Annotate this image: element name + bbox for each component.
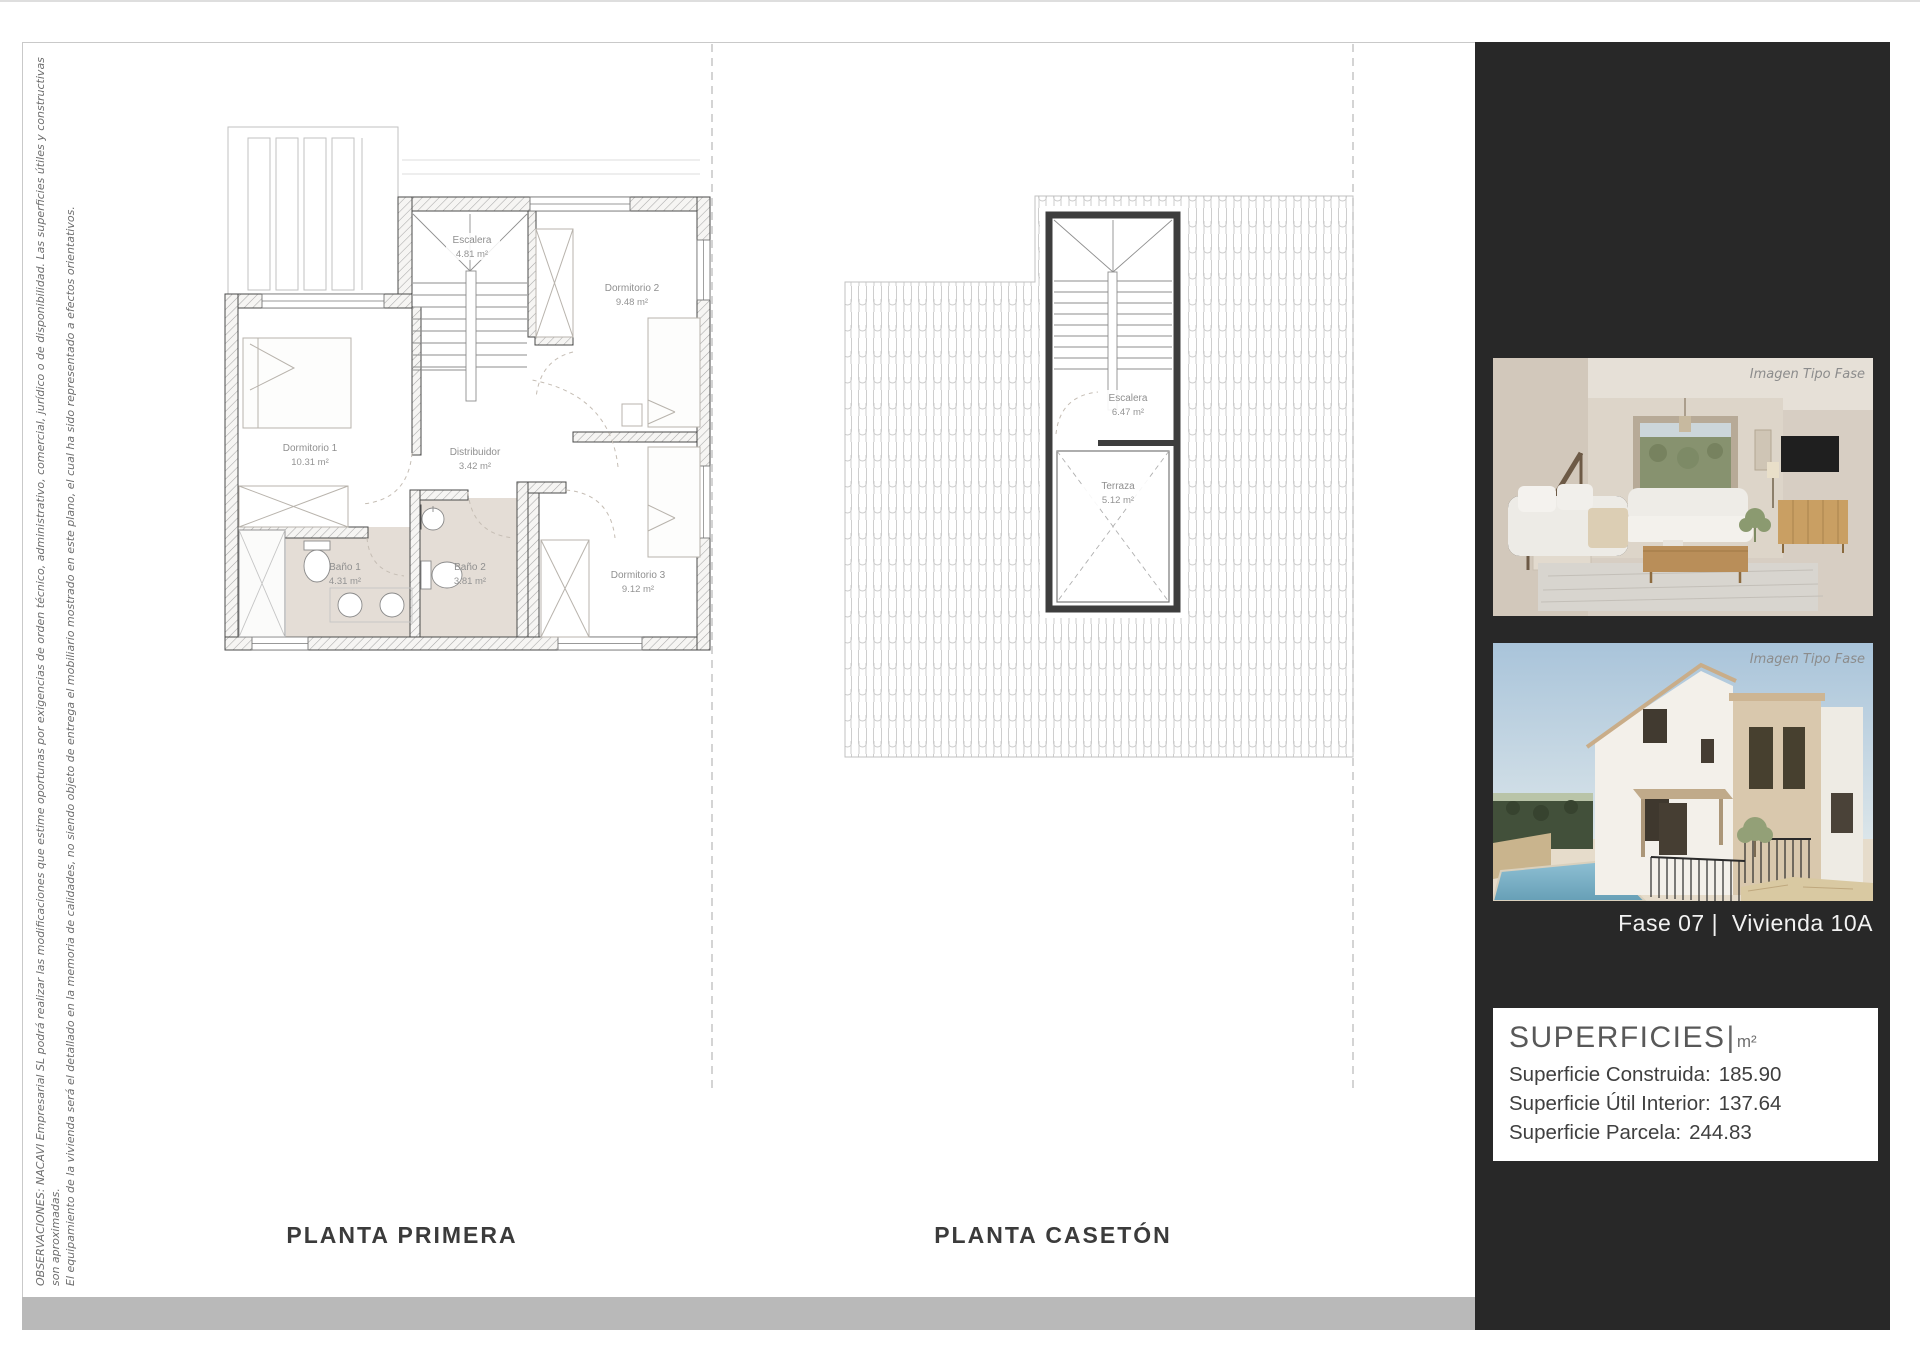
svg-text:9.12 m²: 9.12 m² — [622, 584, 654, 595]
svg-text:Baño 1: Baño 1 — [329, 562, 361, 573]
bottom-gray-bar — [22, 1297, 1475, 1330]
upper-window — [1643, 709, 1667, 743]
plan-title-caseton: PLANTA CASETÓN — [883, 1222, 1223, 1249]
svg-text:Escalera: Escalera — [453, 235, 492, 246]
info-sidebar: Imagen Tipo Fase — [1475, 42, 1890, 1330]
interior-render-scene: Imagen Tipo Fase — [1493, 358, 1873, 616]
floor-plan-caseton: Escalera 6.47 m² Terraza 5.12 m² — [845, 196, 1353, 757]
room-label-dormitorio-3: Dormitorio 3 9.12 m² — [611, 570, 666, 595]
room-label-dormitorio-1: Dormitorio 1 10.31 m² — [283, 443, 338, 468]
svg-text:5.12 m²: 5.12 m² — [1102, 495, 1134, 506]
floor-plans-drawing: Escalera 4.81 m² Dormitorio 2 9.48 m² Do… — [0, 0, 1475, 1357]
room-label-dormitorio-2: Dormitorio 2 9.48 m² — [605, 283, 660, 308]
superficies-heading: SUPERFICIES|m² — [1509, 1020, 1862, 1060]
svg-text:Baño 2: Baño 2 — [454, 562, 486, 573]
superficie-parcela-row: Superficie Parcela:244.83 — [1509, 1118, 1862, 1147]
floor-lamp — [1767, 462, 1779, 478]
svg-text:4.31 m²: 4.31 m² — [329, 576, 361, 587]
image-caption: Imagen Tipo Fase — [1750, 652, 1865, 667]
superficies-box: SUPERFICIES|m² Superficie Construida:185… — [1493, 1008, 1878, 1161]
pergola-canopy — [1633, 789, 1733, 799]
svg-text:Distribuidor: Distribuidor — [450, 447, 501, 458]
unit-title: Fase 07 | Vivienda 10A — [1618, 910, 1873, 937]
interior-render-image: Imagen Tipo Fase — [1493, 358, 1873, 616]
svg-text:3.42 m²: 3.42 m² — [459, 461, 491, 472]
pergola-terrace — [228, 127, 398, 295]
exterior-render-scene: Imagen Tipo Fase — [1493, 643, 1873, 901]
room-label-distribuidor: Distribuidor 3.42 m² — [450, 447, 501, 472]
svg-text:4.81 m²: 4.81 m² — [456, 249, 488, 260]
svg-text:6.47 m²: 6.47 m² — [1112, 407, 1144, 418]
exterior-render-image: Imagen Tipo Fase — [1493, 643, 1873, 901]
coffee-table — [1643, 546, 1748, 572]
superficie-util-row: Superficie Útil Interior:137.64 — [1509, 1089, 1862, 1118]
pendant-lamp — [1679, 416, 1691, 432]
image-caption: Imagen Tipo Fase — [1750, 367, 1865, 382]
svg-text:Escalera: Escalera — [1109, 393, 1148, 404]
plan-title-primera: PLANTA PRIMERA — [232, 1222, 572, 1249]
entry-door — [1659, 803, 1687, 855]
floor-plan-primera: Escalera 4.81 m² Dormitorio 2 9.48 m² Do… — [225, 127, 710, 650]
svg-text:Dormitorio 2: Dormitorio 2 — [605, 283, 660, 294]
svg-text:10.31 m²: 10.31 m² — [291, 457, 329, 468]
plan-sheet-page: OBSERVACIONES: NACAVI Empresarial SL pod… — [0, 0, 1920, 1357]
throw-blanket — [1588, 508, 1628, 548]
roof-eave-lines — [402, 160, 700, 174]
tv-screen — [1781, 436, 1839, 472]
svg-text:Terraza: Terraza — [1101, 481, 1135, 492]
svg-text:Dormitorio 1: Dormitorio 1 — [283, 443, 338, 454]
svg-text:Dormitorio 3: Dormitorio 3 — [611, 570, 666, 581]
superficie-construida-row: Superficie Construida:185.90 — [1509, 1060, 1862, 1089]
svg-text:9.48 m²: 9.48 m² — [616, 297, 648, 308]
svg-text:3.81 m²: 3.81 m² — [454, 576, 486, 587]
